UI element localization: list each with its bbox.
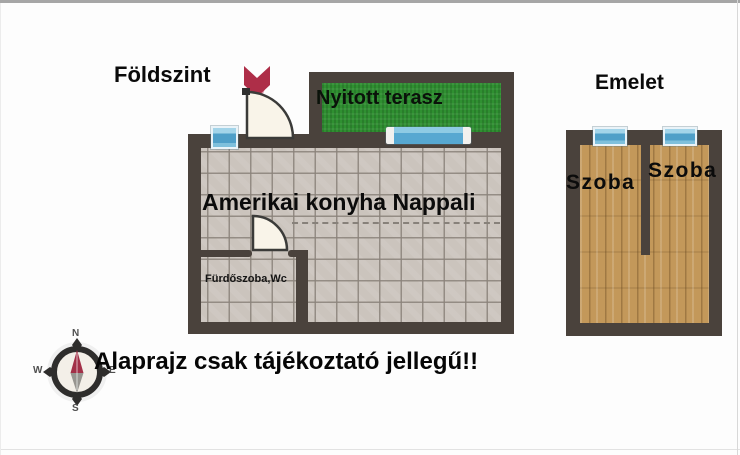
image-left-border xyxy=(0,3,1,455)
bathroom-wall-vertical xyxy=(296,250,308,322)
compass-west-label: W xyxy=(33,365,42,376)
living-room-area xyxy=(188,134,514,334)
image-top-border xyxy=(0,0,740,3)
compass-north-label: N xyxy=(72,328,79,339)
bathroom-label: Fürdőszoba,Wc xyxy=(205,273,287,285)
terrace-label: Nyitott terasz xyxy=(316,87,443,110)
terrace-sliding-door xyxy=(386,127,471,144)
upper-floor-window-right xyxy=(663,127,697,146)
room-left-label: Szoba xyxy=(566,171,635,195)
disclaimer-text: Alaprajz csak tájékoztató jellegű!! xyxy=(94,348,478,376)
compass-needle-north-icon xyxy=(71,350,84,373)
gallery-dashed-line xyxy=(292,222,500,224)
room-right-label: Szoba xyxy=(648,159,717,183)
ground-floor-window xyxy=(211,126,238,149)
entrance-door-swing-icon xyxy=(242,88,293,138)
image-right-border xyxy=(737,0,738,455)
floor-plan-image: Földszint Nyitott terasz Amerikai konyha… xyxy=(0,0,740,455)
ground-floor-title: Földszint xyxy=(114,62,211,88)
upper-floor-title: Emelet xyxy=(595,71,664,95)
bathroom-wall-left xyxy=(201,250,252,257)
upper-floor-window-left xyxy=(593,127,627,146)
compass-needle-south-icon xyxy=(71,373,84,393)
image-bottom-border xyxy=(0,449,740,450)
entrance-arrow-icon xyxy=(244,66,270,108)
compass-south-label: S xyxy=(72,403,79,414)
living-room-label: Amerikai konyha Nappali xyxy=(202,189,476,216)
